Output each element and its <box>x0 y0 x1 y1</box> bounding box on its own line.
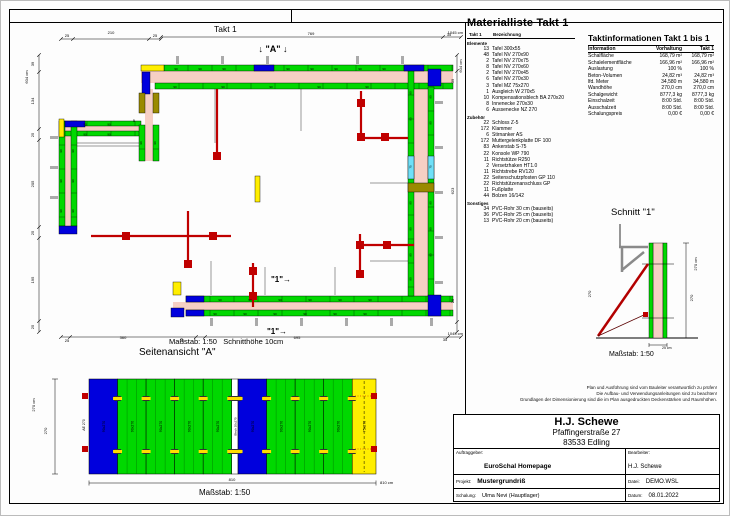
takt-info-cell: 0,00 € <box>646 111 682 117</box>
plan-label: 90 <box>303 312 307 316</box>
clamp-icon-bar <box>113 397 122 400</box>
material-row: 6Aussenecke NZ 270 <box>467 107 591 113</box>
plan-label: 25 <box>153 33 158 38</box>
konsole-tick <box>255 318 258 326</box>
material-name: Aussenecke NZ 270 <box>492 107 591 113</box>
plan-label: 90 <box>218 298 222 302</box>
konsole-tick <box>176 56 179 64</box>
datum-label: Datum: <box>628 493 643 498</box>
takt-info-cell: Vorhaltung <box>646 46 682 52</box>
datum-value: 08.01.2022 <box>649 493 679 499</box>
auftraggeber-cell: Auftraggeber: EuroSchal Homepage <box>454 449 626 474</box>
projekt-cell: Projekt: Mustergrundriß <box>454 475 626 488</box>
clamp-icon-bar <box>319 450 328 453</box>
projekt-label: Projekt: <box>456 479 471 484</box>
plan-label: 1045 cm <box>448 331 464 336</box>
panel-strip <box>186 296 453 302</box>
elevation-panel-label: 90x270 <box>336 421 340 433</box>
col-qty: Takt 1 <box>467 32 493 37</box>
plan-label: 695 <box>294 335 301 340</box>
elevation-label: 810 <box>229 477 236 482</box>
clamp-icon-bar <box>348 397 357 400</box>
plan-label: 90 <box>174 67 178 71</box>
plan-label: 90 <box>363 312 367 316</box>
plan-label: 90 <box>317 85 321 89</box>
takt-info-cell: Information <box>588 46 646 52</box>
plan-label: 90 <box>368 298 372 302</box>
datum-cell: Datum: 08.01.2022 <box>626 489 719 502</box>
header-band-tick <box>291 9 292 22</box>
plan-label: 90 <box>429 201 433 205</box>
schalung-cell: Schalung: Ulma Nevi (Hauptlager) <box>454 489 626 502</box>
konsole-tick <box>50 196 58 199</box>
plan-label: 90 <box>153 141 157 145</box>
plan-label: 90 <box>139 141 143 145</box>
clamp-icon-bar <box>113 450 122 453</box>
plan-label: 90 <box>83 133 87 137</box>
takt-info-table: InformationVorhaltungTakt 1Schalfläche16… <box>588 45 714 117</box>
plan-label: 39 <box>450 78 455 83</box>
section-drawing: 270 cm27027025 cm <box>586 206 721 366</box>
konsole-tick <box>50 166 58 169</box>
plan-sheet: { "sheet": { "takt_label": "Takt 1" }, "… <box>0 0 730 516</box>
konsole-tick <box>266 56 269 64</box>
clamp-icon-bar <box>291 397 300 400</box>
plan-label: 1045 cm <box>448 31 464 35</box>
konsole-tick <box>430 318 433 326</box>
section-label: 270 <box>587 290 592 297</box>
schalung-label: Schalung: <box>456 493 476 498</box>
clamp-icon-bar <box>142 450 151 453</box>
schalung-value: Ulma Nevi (Hauptlager) <box>482 493 539 499</box>
material-list-header: Takt 1 Bezeichnung <box>467 32 575 39</box>
plan-scale-note: Maßstab: 1:50 Schnitthöhe 10cm <box>169 337 283 346</box>
plan-label: 90 <box>429 227 433 231</box>
takt-info-title: Taktinformationen Takt 1 bis 1 <box>588 33 716 43</box>
special-panels <box>59 65 441 317</box>
title-block: H.J. Schewe Pfaffingerstraße 27 83533 Ed… <box>453 414 720 502</box>
disclaimer-line: Grundlagen der Dimensionierung sind die … <box>449 397 717 403</box>
plan-label: 90 <box>333 312 337 316</box>
plan-label: 90 <box>429 121 433 125</box>
elevation-panel-label: 75x270 <box>363 421 367 433</box>
elevation-panel-label: 90x270 <box>130 421 134 433</box>
takt-info-cell: Schalungspreis <box>588 111 646 117</box>
plan-label: 90 <box>213 312 217 316</box>
plan-label: 75 <box>429 165 433 169</box>
clamp-icon-bar <box>170 397 179 400</box>
elevation-scale-note: Maßstab: 1:50 <box>199 488 250 497</box>
material-qty: 44 <box>467 193 492 199</box>
col-name: Bezeichnung <box>493 32 521 37</box>
material-name: PVC-Rohr 20 cm (bauseits) <box>492 218 591 224</box>
material-qty: 13 <box>467 218 492 224</box>
konsole-tick <box>401 56 404 64</box>
title-block-company: H.J. Schewe Pfaffingerstraße 27 83533 Ed… <box>454 415 719 449</box>
elevation-panel-label: 90x270 <box>159 421 163 433</box>
plan-label: 604 cm <box>25 70 29 84</box>
konsole-tick <box>435 281 443 284</box>
plan-label: 35 <box>443 337 448 342</box>
future-wall-lines <box>77 89 408 295</box>
takt-info-cell: Takt 1 <box>682 46 714 52</box>
plan-label: 25 <box>65 338 70 343</box>
plan-label: 90 <box>365 85 369 89</box>
plan-label: 90 <box>59 209 63 213</box>
section-wall <box>649 243 667 338</box>
plan-label: 195 <box>30 276 35 283</box>
konsole-brackets <box>50 56 443 326</box>
konsole-tick <box>300 318 303 326</box>
datei-label: Datei: <box>628 479 640 484</box>
clamp-icon-bar <box>262 450 271 453</box>
plan-label: 90 <box>198 67 202 71</box>
takt-info-header-row: InformationVorhaltungTakt 1 <box>588 45 714 53</box>
plan-label: 90 <box>382 67 386 71</box>
plan-label: 90 <box>429 95 433 99</box>
plan-label: 90 <box>409 227 413 231</box>
datei-cell: Datei: DEMO.WSL <box>626 475 719 488</box>
clamp-icon-bar <box>170 450 179 453</box>
plan-label: 90 <box>59 149 63 153</box>
konsole-tick <box>435 101 443 104</box>
elevation-label: 810 cm <box>380 480 394 485</box>
material-list: Materialliste Takt 1 Takt 1 Bezeichnung … <box>467 17 591 225</box>
plan-label: 75 <box>409 165 413 169</box>
plan-label: 360 <box>120 335 127 340</box>
plan-label: 90 <box>173 85 177 89</box>
konsole-tick <box>221 56 224 64</box>
elevation-panel-label: 90x270 <box>187 421 191 433</box>
plan-label: 90 <box>221 85 225 89</box>
clamp-icon-bar <box>262 397 271 400</box>
plan-label: 25 <box>30 132 35 137</box>
projekt-value: Mustergrundriß <box>477 478 525 485</box>
material-row: 44Bolzen 16/142 <box>467 193 591 199</box>
material-qty: 6 <box>467 107 492 113</box>
plan-label: "1"→ <box>271 275 291 284</box>
plan-label: 90 <box>338 298 342 302</box>
section-label: 25 cm <box>662 346 672 350</box>
company-name: H.J. Schewe <box>454 416 719 428</box>
datei-value: DEMO.WSL <box>646 479 679 485</box>
plan-label: 25 <box>65 33 70 38</box>
konsole-tick <box>435 191 443 194</box>
section-label: 270 cm <box>693 257 698 271</box>
plan-label: 39 <box>30 61 35 66</box>
plan-label: 90 <box>83 123 87 127</box>
konsole-tick <box>356 56 359 64</box>
plan-label: 90 <box>429 253 433 257</box>
plan-label: 90 <box>243 312 247 316</box>
clamp-icon-bar <box>199 450 208 453</box>
plan-label: 25 <box>450 298 455 303</box>
konsole-bracket <box>619 224 648 272</box>
clamp-icon-bar <box>319 397 328 400</box>
plan-label: "1"→ <box>267 327 287 336</box>
plan-label: 25 <box>30 324 35 329</box>
takt-info-row: Schalungspreis0,00 €0,00 € <box>588 111 714 117</box>
plan-label: 205 <box>30 180 35 187</box>
plan-label: 90 <box>358 67 362 71</box>
plan-label: 90 <box>409 91 413 95</box>
konsole-tick <box>210 318 213 326</box>
material-name: Bolzen 16/142 <box>492 193 591 199</box>
company-city: 83533 Edling <box>454 438 719 448</box>
disclaimer-text: Plan und Ausführung sind vom Bauleiter v… <box>449 385 717 403</box>
takt-info: Taktinformationen Takt 1 bis 1 Informati… <box>588 33 716 117</box>
plan-label: 90 <box>107 123 111 127</box>
elevation-label: AE 270 <box>82 419 86 431</box>
company-street: Pfaffingerstraße 27 <box>454 428 719 438</box>
plan-label: 134 <box>30 97 35 104</box>
elevation-drawing: 90x27090x27090x27090x27090x270Blech 20x2… <box>25 353 425 503</box>
clamp-icon-bar <box>234 397 243 400</box>
material-list-rows: Elemente13Tafel 300x5548Tafel NV 270x902… <box>467 41 591 225</box>
plan-label: 90 <box>278 298 282 302</box>
plan-label: 90 <box>269 85 273 89</box>
section-label: 270 <box>689 294 694 301</box>
plan-label: 90 <box>71 179 75 183</box>
elevation-panel-label: 90x270 <box>216 421 220 433</box>
konsole-tick <box>435 146 443 149</box>
clamp-icon-bar <box>291 450 300 453</box>
plan-label: 90 <box>409 117 413 121</box>
plan-label: ↓ "A" ↓ <box>258 44 287 54</box>
elevation-panel-label: Blech 20x270 <box>233 417 237 436</box>
clamp-icon-bar <box>234 450 243 453</box>
panel-strip <box>186 310 453 316</box>
plan-label: 90 <box>409 253 413 257</box>
plan-list-divider <box>465 22 466 414</box>
clamp-icon-bar <box>199 397 208 400</box>
elevation-label: 270 <box>43 427 48 434</box>
section-scale-note: Maßstab: 1:50 <box>609 351 654 358</box>
plan-label: 769 <box>308 31 315 36</box>
plan-label: 90 <box>409 277 413 281</box>
bearbeiter-cell: Bearbeiter: H.J. Schewe <box>626 449 719 474</box>
plan-label: 623 <box>450 187 455 194</box>
floor-plan-drawing: 2521025769351045 cm604 cm391342520525195… <box>25 31 465 351</box>
bearbeiter-value: H.J. Schewe <box>628 464 662 470</box>
elevation-label: 270 cm <box>31 398 36 412</box>
konsole-tick <box>390 318 393 326</box>
plan-label: 90 <box>248 298 252 302</box>
plan-label: 90 <box>409 201 413 205</box>
plan-label: 90 <box>273 312 277 316</box>
plan-label: 90 <box>71 149 75 153</box>
header-band-line <box>9 22 722 23</box>
plan-label: 90 <box>222 67 226 71</box>
elevation-panel-label: 90x270 <box>102 421 106 433</box>
brace-red <box>598 264 648 336</box>
konsole-tick <box>50 136 58 139</box>
plan-label: 90 <box>71 209 75 213</box>
plan-label: 90 <box>107 133 111 137</box>
elevation-panel-label: 90x270 <box>308 421 312 433</box>
plan-label: 90 <box>308 298 312 302</box>
material-list-title: Materialliste Takt 1 <box>467 17 591 29</box>
elevation-panel-label: 90x270 <box>251 421 255 433</box>
bearbeiter-label: Bearbeiter: <box>628 450 717 455</box>
plan-label: 604 cm <box>458 59 463 73</box>
konsole-tick <box>345 318 348 326</box>
elevation-panels: 90x27090x27090x27090x27090x270Blech 20x2… <box>89 379 376 474</box>
takt-info-cell: 0,00 € <box>682 111 714 117</box>
material-row: 13PVC-Rohr 20 cm (bauseits) <box>467 218 591 224</box>
elevation-panel-label: 90x270 <box>279 421 283 433</box>
auftraggeber-value: EuroSchal Homepage <box>484 463 551 470</box>
clamp-icon-bar <box>348 450 357 453</box>
clamp-icon-bar <box>142 397 151 400</box>
plan-label: 90 <box>59 179 63 183</box>
konsole-tick <box>435 236 443 239</box>
plan-label: 90 <box>334 67 338 71</box>
plan-label: 90 <box>310 67 314 71</box>
plan-label: 25 <box>30 230 35 235</box>
plan-label: 210 <box>108 31 115 35</box>
plan-label: 90 <box>286 67 290 71</box>
auftraggeber-label: Auftraggeber: <box>456 450 623 455</box>
